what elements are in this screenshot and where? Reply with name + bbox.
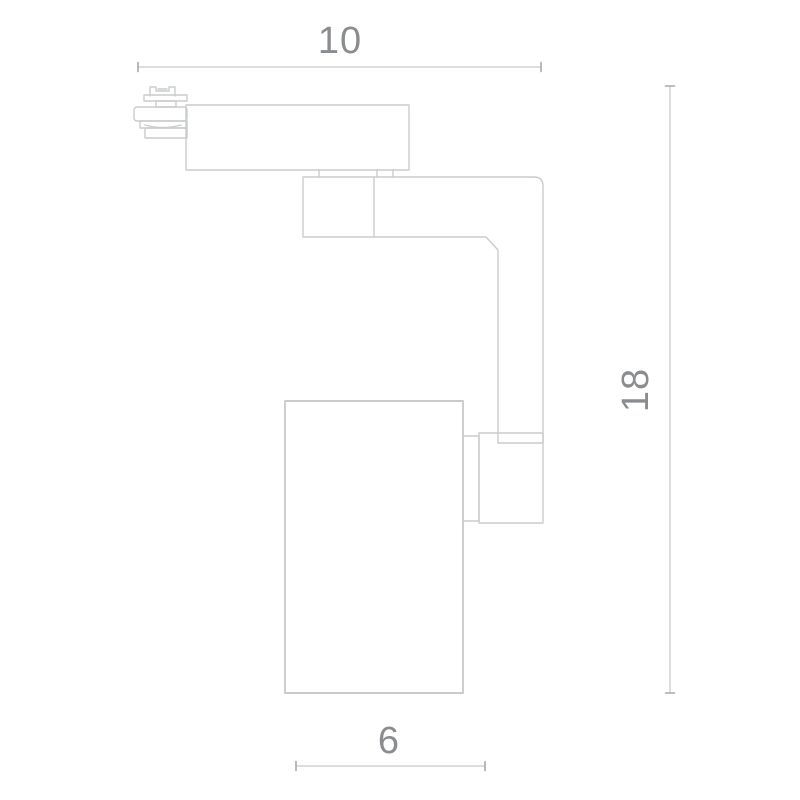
fixture-drawing — [134, 87, 543, 693]
diagram-page: 10 18 6 — [0, 0, 800, 800]
track-adapter — [134, 87, 187, 138]
lamp-body — [285, 401, 463, 693]
bottom-dimension: 6 — [296, 720, 485, 771]
right-dimension: 18 — [615, 86, 675, 693]
adapter-stem — [156, 101, 176, 107]
support-arm — [303, 177, 543, 443]
adapter-lip-curve — [145, 125, 181, 128]
fixture-dimension-diagram: 10 18 6 — [0, 0, 800, 800]
gear-box — [186, 105, 409, 170]
adapter-head — [134, 107, 187, 121]
bottom-dimension-label: 6 — [378, 720, 400, 762]
swivel-joint — [319, 170, 393, 177]
lamp-mount-tab — [463, 436, 479, 521]
pivot-connector-box — [479, 433, 543, 523]
adapter-base — [145, 128, 187, 138]
right-dimension-label: 18 — [615, 368, 657, 412]
top-dimension: 10 — [138, 20, 541, 72]
top-dimension-label: 10 — [318, 20, 362, 62]
